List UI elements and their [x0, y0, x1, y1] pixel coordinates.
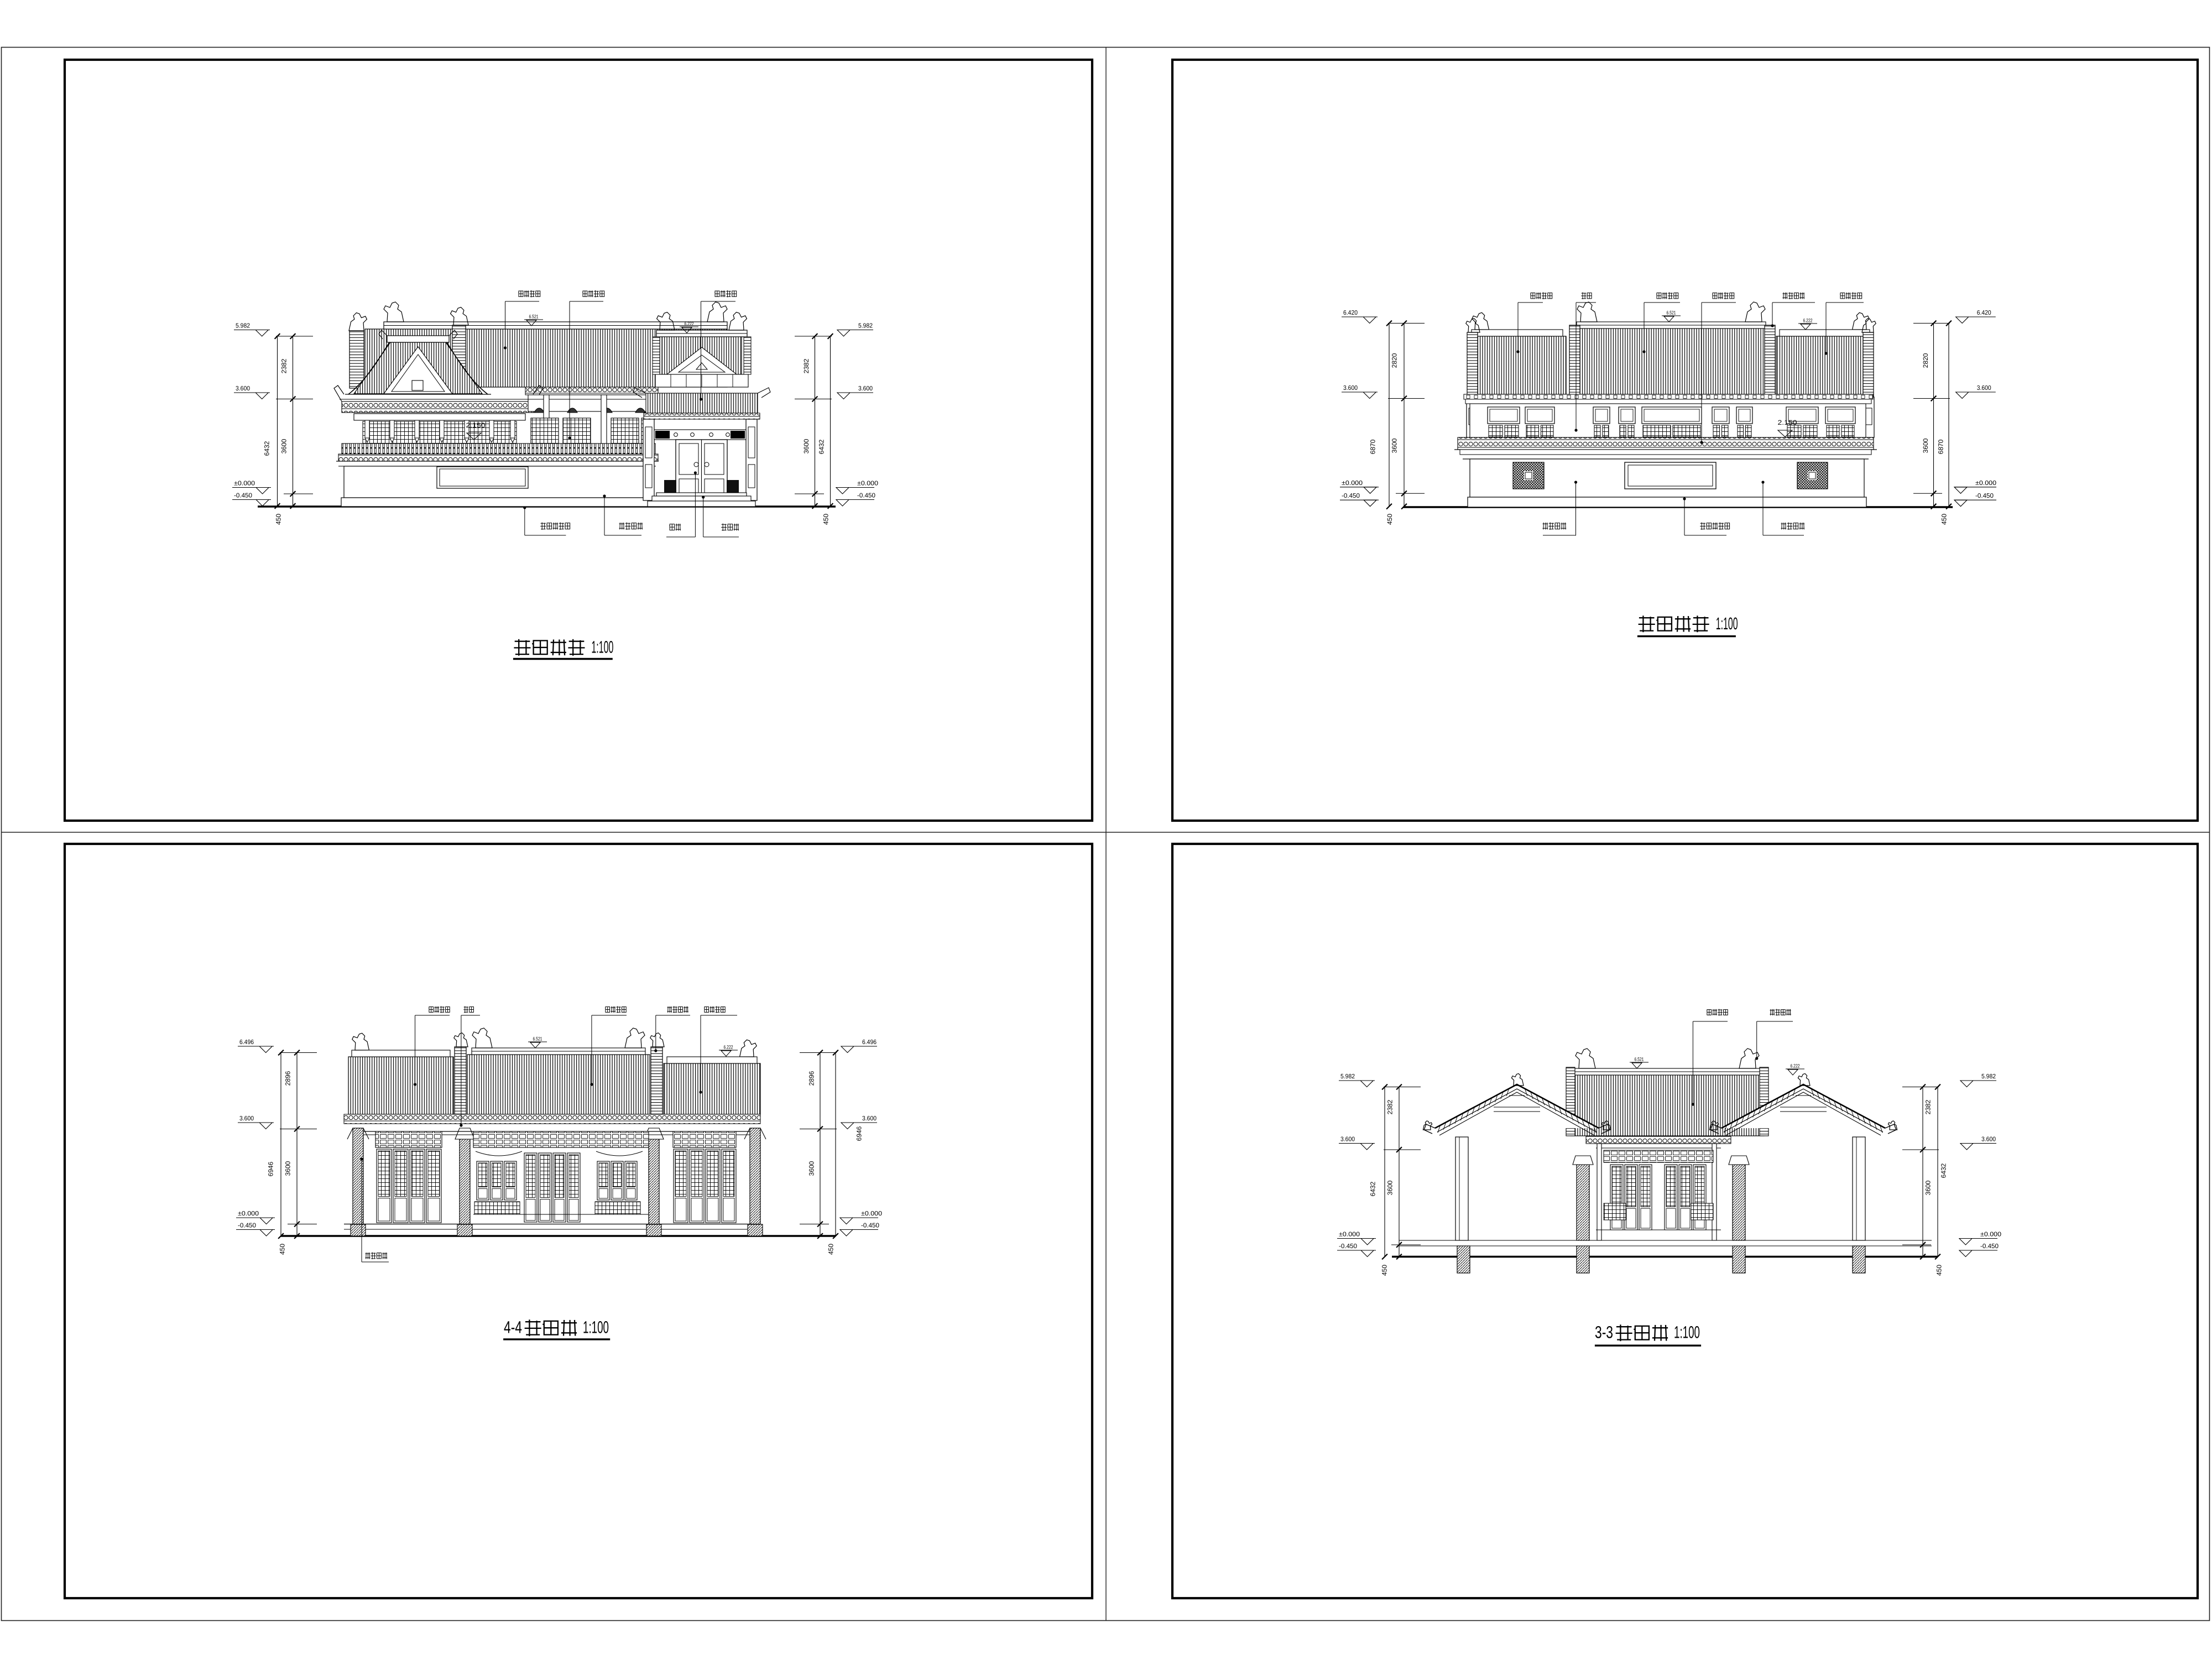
svg-text:3.600: 3.600 — [1981, 1136, 1996, 1143]
svg-text:2382: 2382 — [280, 358, 288, 373]
svg-text:450: 450 — [822, 514, 830, 525]
svg-text:6432: 6432 — [263, 441, 271, 456]
svg-text:5.982: 5.982 — [1340, 1073, 1355, 1080]
svg-text:±0.000: ±0.000 — [1980, 1232, 2001, 1238]
svg-text:±0.000: ±0.000 — [1342, 480, 1363, 487]
svg-text:3.600: 3.600 — [239, 1115, 254, 1122]
svg-text:1:100: 1:100 — [1674, 1323, 1700, 1342]
svg-text:±0.000: ±0.000 — [857, 481, 878, 487]
svg-text:2.150: 2.150 — [466, 421, 486, 429]
svg-text:2382: 2382 — [802, 358, 810, 373]
svg-text:6946: 6946 — [267, 1161, 275, 1176]
svg-text:6.420: 6.420 — [1977, 310, 1991, 316]
svg-text:2896: 2896 — [284, 1071, 292, 1086]
svg-text:5.982: 5.982 — [236, 323, 250, 330]
svg-text:6432: 6432 — [818, 439, 826, 454]
svg-text:5.982: 5.982 — [1981, 1073, 1996, 1080]
svg-text:3.600: 3.600 — [1977, 385, 1991, 392]
svg-text:2896: 2896 — [808, 1071, 816, 1086]
svg-text:±0.000: ±0.000 — [1339, 1232, 1360, 1238]
svg-text:-0.450: -0.450 — [234, 493, 252, 499]
svg-text:3.600: 3.600 — [1340, 1136, 1355, 1143]
svg-text:6.521: 6.521 — [533, 1036, 542, 1042]
svg-text:3.600: 3.600 — [236, 385, 250, 392]
svg-text:6870: 6870 — [1937, 439, 1945, 454]
svg-text:3600: 3600 — [802, 439, 810, 453]
svg-text:2820: 2820 — [1391, 353, 1399, 368]
svg-text:6.521: 6.521 — [1635, 1057, 1644, 1062]
svg-text:2382: 2382 — [1924, 1099, 1932, 1114]
svg-text:6.496: 6.496 — [862, 1039, 877, 1046]
svg-text:6432: 6432 — [1369, 1181, 1377, 1196]
svg-text:1:100: 1:100 — [1716, 614, 1738, 633]
svg-text:4-4: 4-4 — [504, 1318, 522, 1337]
svg-text:-0.450: -0.450 — [1342, 493, 1360, 499]
svg-text:6.222: 6.222 — [1791, 1063, 1800, 1069]
svg-text:2.150: 2.150 — [1778, 419, 1797, 426]
svg-text:3.600: 3.600 — [1343, 385, 1358, 392]
svg-text:6.222: 6.222 — [685, 321, 694, 327]
svg-text:450: 450 — [827, 1244, 835, 1255]
svg-text:3600: 3600 — [280, 439, 288, 453]
svg-text:450: 450 — [279, 1244, 286, 1255]
svg-text:3600: 3600 — [1386, 1180, 1394, 1195]
svg-text:450: 450 — [275, 514, 283, 525]
svg-text:±0.000: ±0.000 — [234, 481, 255, 487]
svg-text:-0.450: -0.450 — [238, 1223, 256, 1229]
svg-text:6.521: 6.521 — [1667, 310, 1676, 316]
svg-text:6.420: 6.420 — [1343, 310, 1358, 316]
svg-text:2382: 2382 — [1386, 1099, 1394, 1114]
svg-text:3600: 3600 — [1922, 438, 1929, 453]
svg-text:6.222: 6.222 — [724, 1045, 733, 1050]
svg-text:-0.450: -0.450 — [1980, 1243, 1999, 1250]
svg-text:-0.450: -0.450 — [1975, 493, 1994, 499]
svg-text:3600: 3600 — [808, 1161, 816, 1176]
svg-text:6870: 6870 — [1369, 439, 1377, 454]
svg-text:6946: 6946 — [855, 1126, 863, 1141]
svg-text:3600: 3600 — [1391, 438, 1399, 453]
svg-text:6.222: 6.222 — [1803, 318, 1813, 324]
svg-text:3.600: 3.600 — [862, 1115, 877, 1122]
svg-text:-0.450: -0.450 — [1339, 1243, 1357, 1250]
svg-text:450: 450 — [1386, 514, 1394, 525]
svg-text:450: 450 — [1940, 514, 1948, 525]
svg-text:1:100: 1:100 — [591, 638, 613, 657]
svg-text:6432: 6432 — [1940, 1163, 1948, 1178]
svg-text:3.600: 3.600 — [858, 385, 873, 392]
svg-text:3600: 3600 — [284, 1161, 292, 1176]
svg-text:2820: 2820 — [1922, 353, 1929, 368]
svg-text:-0.450: -0.450 — [857, 493, 875, 499]
svg-text:3600: 3600 — [1924, 1180, 1932, 1195]
svg-text:-0.450: -0.450 — [861, 1223, 879, 1229]
svg-text:5.982: 5.982 — [858, 323, 873, 330]
svg-text:450: 450 — [1381, 1265, 1389, 1276]
svg-text:3-3: 3-3 — [1595, 1323, 1613, 1342]
svg-text:±0.000: ±0.000 — [861, 1211, 882, 1217]
svg-text:±0.000: ±0.000 — [1975, 480, 1996, 487]
svg-text:6.496: 6.496 — [239, 1039, 254, 1046]
svg-text:1:100: 1:100 — [583, 1318, 609, 1337]
svg-text:450: 450 — [1936, 1265, 1943, 1276]
svg-text:6.521: 6.521 — [529, 314, 539, 320]
svg-text:±0.000: ±0.000 — [238, 1211, 259, 1217]
